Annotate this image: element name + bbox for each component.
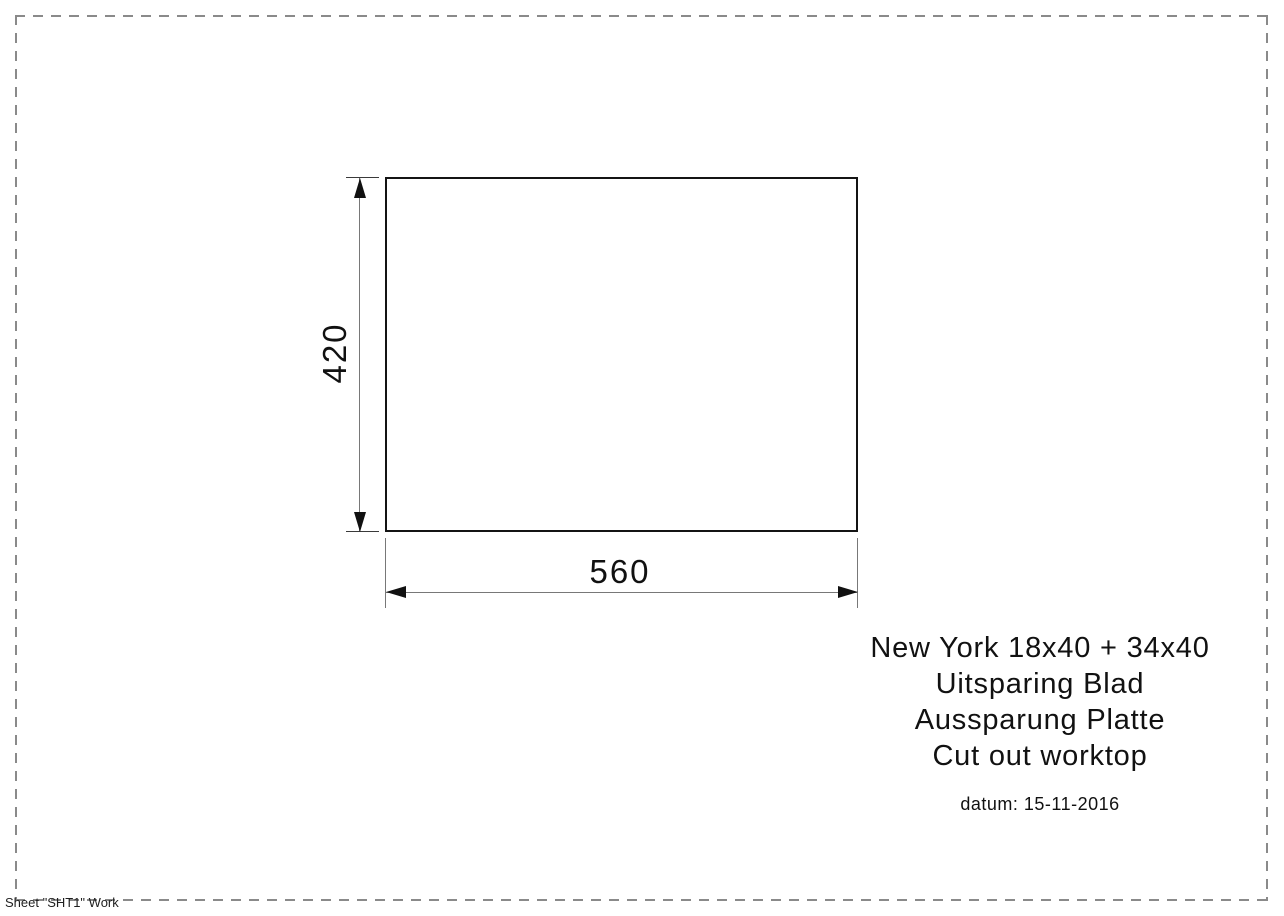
drawing-sheet: 420 560 New York 18x40 + 34x40 Uitsparin… bbox=[0, 0, 1284, 916]
sheet-border-left bbox=[15, 15, 17, 901]
annotation-line-dutch: Uitsparing Blad bbox=[820, 666, 1260, 702]
annotation-block: New York 18x40 + 34x40 Uitsparing Blad A… bbox=[820, 630, 1260, 815]
sheet-border-bottom bbox=[15, 899, 1268, 901]
sheet-name-label: Sheet "SHT1" Work bbox=[5, 895, 119, 910]
annotation-line-english: Cut out worktop bbox=[820, 738, 1260, 774]
sheet-border-top bbox=[15, 15, 1268, 17]
width-dimension-label: 560 bbox=[589, 553, 650, 591]
height-dimension-line bbox=[359, 178, 360, 532]
arrowhead-left-icon bbox=[386, 586, 406, 598]
date-label: datum: 15-11-2016 bbox=[820, 793, 1260, 815]
arrowhead-right-icon bbox=[838, 586, 858, 598]
width-dimension-line bbox=[386, 592, 858, 593]
arrowhead-up-icon bbox=[354, 178, 366, 198]
cutout-rectangle bbox=[385, 177, 858, 532]
annotation-title: New York 18x40 + 34x40 bbox=[820, 630, 1260, 666]
arrowhead-down-icon bbox=[354, 512, 366, 532]
sheet-border-right bbox=[1266, 15, 1268, 901]
height-dimension-label: 420 bbox=[316, 322, 354, 383]
annotation-line-german: Aussparung Platte bbox=[820, 702, 1260, 738]
